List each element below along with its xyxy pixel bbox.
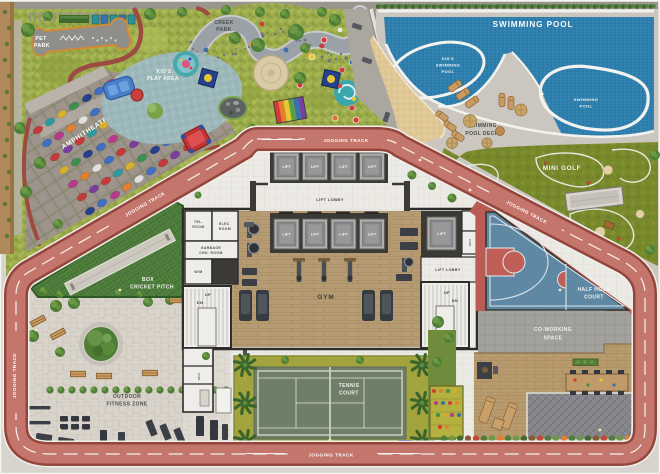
svg-text:LIFT: LIFT: [437, 231, 446, 236]
svg-text:LIFT LOBBY: LIFT LOBBY: [316, 197, 344, 202]
svg-text:JOGGING TRACK: JOGGING TRACK: [12, 353, 17, 398]
svg-text:PLAY AREA: PLAY AREA: [147, 76, 179, 82]
svg-text:GYM: GYM: [317, 294, 334, 301]
svg-text:PARK: PARK: [34, 43, 50, 49]
svg-text:LIFT: LIFT: [311, 164, 320, 169]
svg-text:COURT: COURT: [584, 295, 604, 301]
svg-text:COURT: COURT: [339, 391, 359, 397]
svg-text:FHC: FHC: [468, 239, 472, 247]
svg-text:W/M: W/M: [194, 270, 202, 274]
svg-text:DN: DN: [452, 299, 458, 303]
svg-text:PARK: PARK: [216, 27, 231, 33]
svg-text:LIFT: LIFT: [282, 232, 291, 237]
svg-text:JOGGING TRACK: JOGGING TRACK: [323, 138, 368, 143]
svg-text:BOX: BOX: [142, 277, 154, 283]
svg-text:UP: UP: [205, 293, 211, 297]
svg-text:CO-WORKING: CO-WORKING: [534, 327, 572, 333]
svg-text:FITNESS ZONE: FITNESS ZONE: [106, 402, 147, 408]
svg-text:LIFT: LIFT: [339, 164, 348, 169]
svg-text:SWIMMING POOL: SWIMMING POOL: [493, 20, 574, 29]
svg-text:LIFT: LIFT: [282, 164, 291, 169]
svg-text:KID'S: KID'S: [442, 56, 455, 61]
svg-text:UP: UP: [444, 291, 450, 295]
svg-text:POOL DECK: POOL DECK: [465, 131, 498, 137]
svg-text:POOL: POOL: [580, 104, 593, 109]
svg-text:ROOM: ROOM: [219, 227, 231, 231]
svg-text:MINI GOLF: MINI GOLF: [543, 165, 581, 172]
svg-text:SWIMMING: SWIMMING: [436, 63, 461, 68]
svg-text:CRICKET PITCH: CRICKET PITCH: [130, 285, 174, 291]
svg-text:LIFT: LIFT: [311, 232, 320, 237]
svg-text:KID'S: KID'S: [156, 69, 171, 75]
svg-text:POOL: POOL: [442, 69, 455, 74]
svg-text:SWIMMING: SWIMMING: [574, 97, 599, 102]
svg-text:PET: PET: [35, 36, 47, 42]
svg-text:LIFT: LIFT: [368, 232, 377, 237]
svg-text:FHC: FHC: [197, 373, 201, 381]
svg-text:TENNIS: TENNIS: [339, 383, 360, 389]
svg-text:SPACE: SPACE: [544, 336, 563, 342]
svg-text:GARBAGE: GARBAGE: [201, 246, 221, 250]
svg-text:LIFT: LIFT: [339, 232, 348, 237]
svg-text:CREEK: CREEK: [214, 20, 234, 26]
svg-text:ELEC.: ELEC.: [219, 222, 231, 226]
svg-text:ROOM: ROOM: [192, 225, 204, 229]
svg-text:LIFT LOBBY: LIFT LOBBY: [435, 268, 460, 272]
svg-text:TEL.: TEL.: [194, 220, 203, 224]
svg-text:HALF HOOP: HALF HOOP: [577, 287, 610, 293]
svg-text:LIFT: LIFT: [368, 164, 377, 169]
svg-text:CHU. ROOM: CHU. ROOM: [199, 251, 222, 255]
svg-text:JOGGING TRACK: JOGGING TRACK: [308, 453, 353, 458]
svg-text:DN: DN: [197, 301, 203, 305]
svg-text:OUTDOOR: OUTDOOR: [113, 394, 141, 400]
